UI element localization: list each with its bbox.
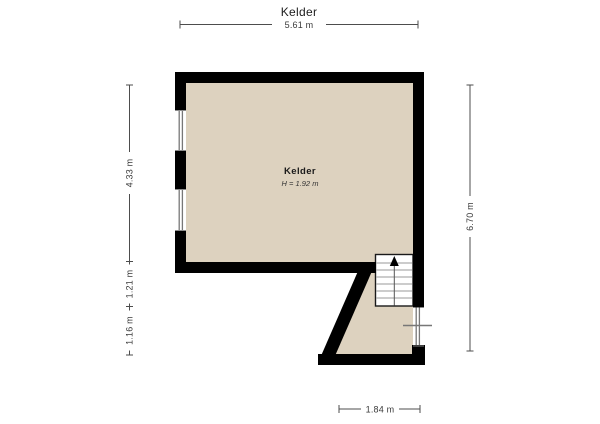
window-left-upper [175,109,186,152]
staircase [376,255,414,307]
room-name-label: Kelder [284,166,316,177]
dimension-bottom-label: 1.84 m [366,405,395,415]
wall-mainroom-bottom [175,262,376,273]
plan-title: Kelder [281,5,318,19]
wall-right [413,72,424,306]
window-left-lower [175,188,186,232]
floor-surfaces [186,83,413,354]
floorplan-svg: Kelder [0,0,600,424]
wall-landing-bottom [318,354,425,365]
wall-left-pier [175,152,186,188]
wall-bottomright-corner [412,345,425,365]
dimension-left-bottom-label: 1.16 m [125,316,135,345]
dimension-left-top-label: 4.33 m [125,159,135,188]
floorplan-canvas: Kelder [0,0,600,424]
dimension-top-label: 5.61 m [285,20,314,30]
dimension-right-label: 6.70 m [465,202,475,231]
room-height-label: H = 1.92 m [282,179,319,188]
wall-top [175,72,424,83]
wall-left-upper [175,72,186,109]
dimension-left-middle-label: 1.21 m [125,270,135,299]
dimension-left [126,85,133,355]
